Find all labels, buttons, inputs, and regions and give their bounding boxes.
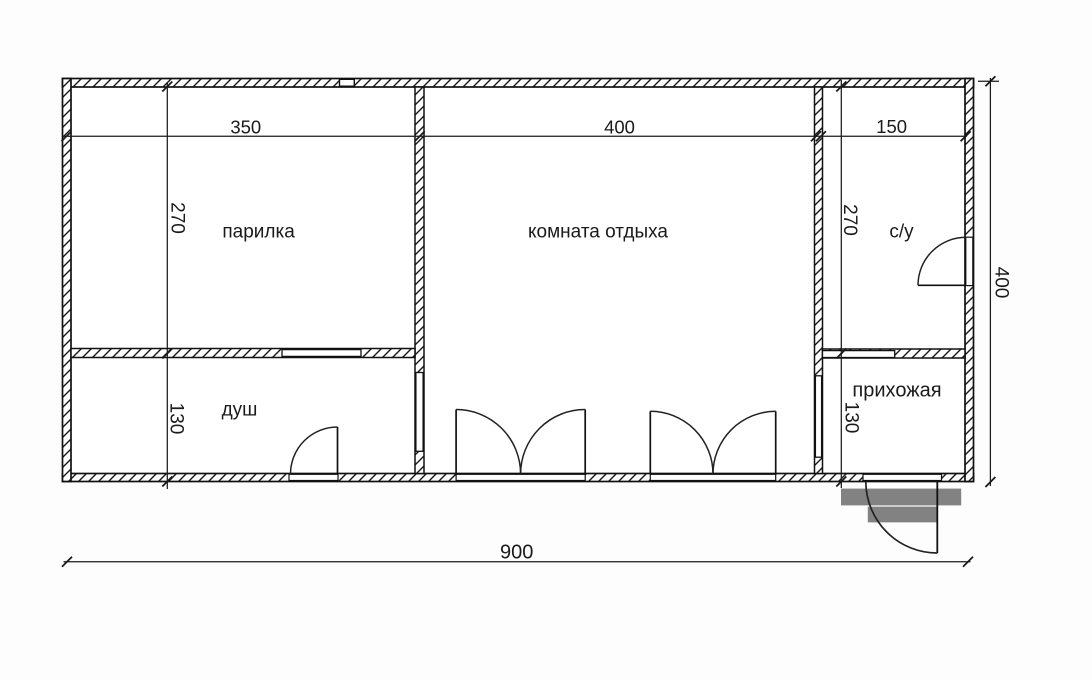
svg-text:270: 270 — [839, 204, 860, 236]
svg-text:400: 400 — [991, 267, 1012, 299]
svg-text:душ: душ — [222, 400, 258, 421]
svg-text:350: 350 — [230, 117, 261, 138]
svg-text:прихожая: прихожая — [852, 380, 941, 402]
svg-text:с/у: с/у — [889, 222, 914, 243]
svg-text:400: 400 — [604, 117, 635, 138]
svg-text:130: 130 — [166, 403, 187, 435]
svg-text:270: 270 — [167, 202, 188, 234]
svg-text:парилка: парилка — [222, 222, 295, 243]
svg-text:900: 900 — [500, 542, 533, 564]
svg-text:150: 150 — [876, 116, 907, 137]
svg-text:130: 130 — [841, 402, 862, 434]
svg-text:комната отдыха: комната отдыха — [528, 222, 668, 243]
